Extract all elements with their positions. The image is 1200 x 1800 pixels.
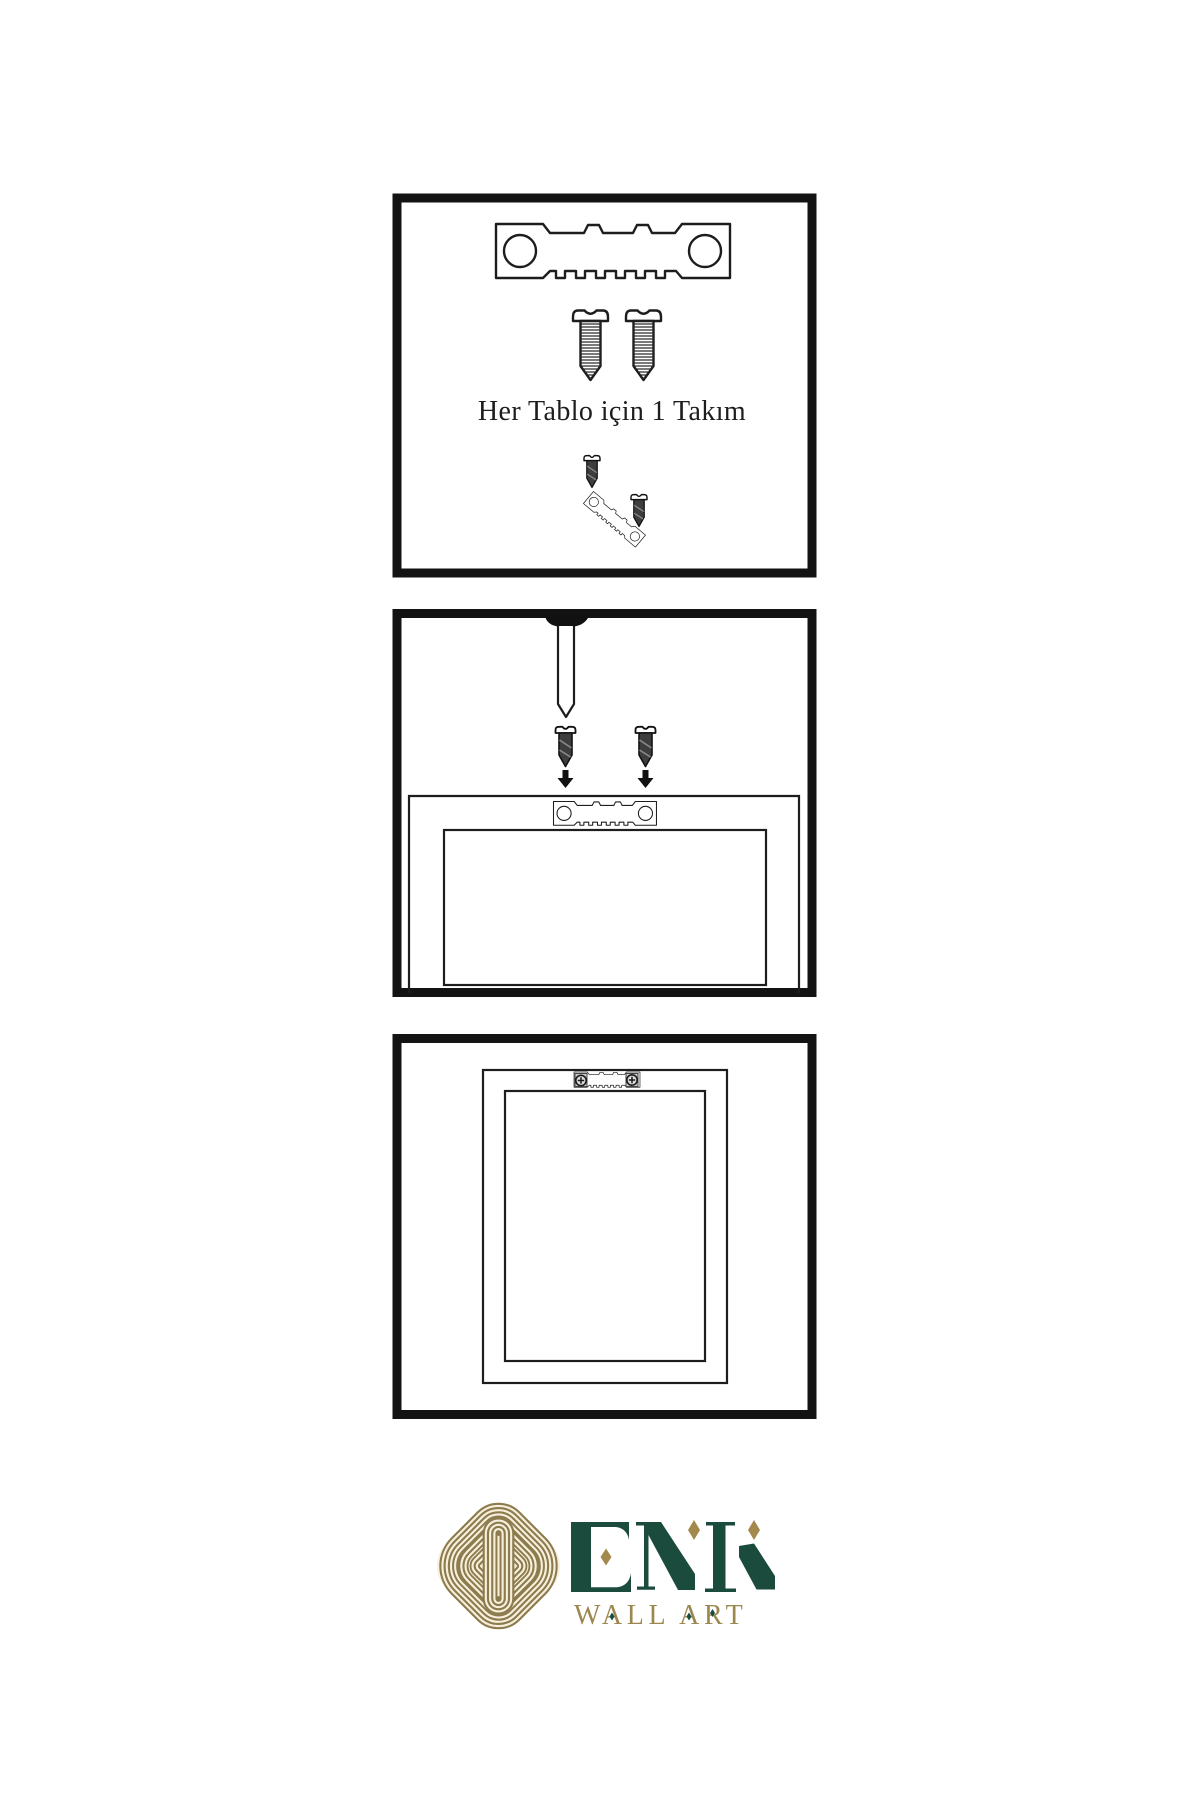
svg-text:WALL ART: WALL ART [574,1600,747,1631]
svg-text:Her Tablo için 1 Takım: Her Tablo için 1 Takım [478,396,746,427]
